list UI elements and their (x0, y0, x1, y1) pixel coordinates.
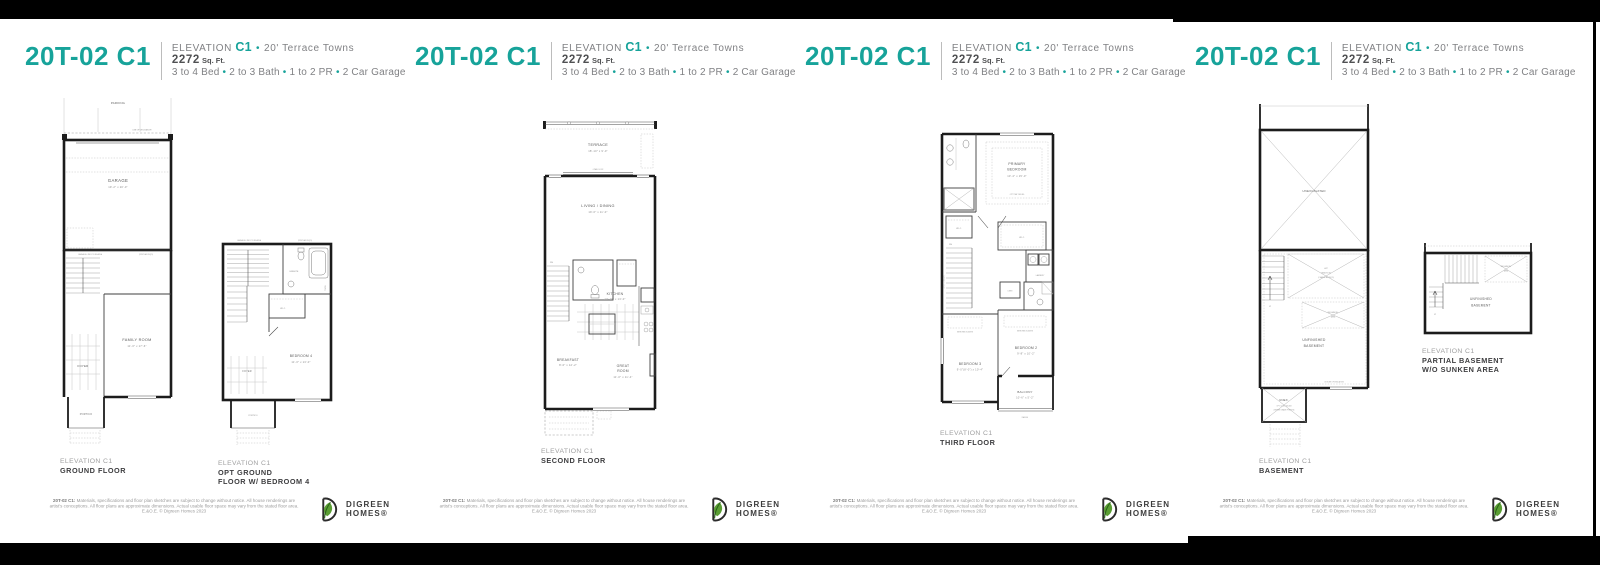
sqft-unit: Sq. Ft. (202, 56, 225, 65)
svg-text:(STEPS AS REQ'D): (STEPS AS REQ'D) (298, 239, 313, 242)
kitchen: KITCHEN 13'-10" x 13'-0" (577, 286, 654, 346)
logo-wordmark: DIGREENHOMES® (1126, 501, 1170, 518)
caption-second-floor: ELEVATION C1 SECOND FLOOR (541, 447, 606, 465)
svg-text:ROOM: ROOM (617, 369, 629, 373)
bottom-scan-bar-right (1188, 536, 1600, 565)
svg-text:6 PANL DOOR: 6 PANL DOOR (593, 168, 604, 171)
main-floor: FAMILY ROOM 11'-0" x 17'-6" FOYER (64, 250, 171, 399)
svg-text:TERRACE: TERRACE (588, 143, 608, 147)
ground-floor-plan: PARKING LINE OF DECK ABOVE GARAGE 19'-2"… (58, 94, 178, 446)
svg-text:GARBAGE & RECYCLING AREA: GARBAGE & RECYCLING AREA (237, 239, 262, 242)
svg-text:11'-0" x 11'-4": 11'-0" x 11'-4" (613, 375, 632, 379)
svg-text:PORTICO: PORTICO (80, 413, 92, 416)
disclaimer: 20T-02 C1: Materials, specifications and… (46, 495, 302, 521)
panel-third-floor: 20T-02 C1 ELEVATION C1•20' Terrace Towns… (798, 0, 1186, 565)
panel-ground-floor: 20T-02 C1 ELEVATION C1•20' Terrace Towns… (18, 0, 406, 565)
caption-partial-basement: ELEVATION C1 PARTIAL BASEMENT W/O SUNKEN… (1422, 347, 1504, 374)
leaf-logo-icon (1094, 496, 1121, 523)
stairs: DN OPEN TO BELOW (944, 244, 973, 308)
svg-text:9'-8" x 10'-2": 9'-8" x 10'-2" (1017, 352, 1035, 356)
svg-text:PARKING: PARKING (111, 101, 126, 105)
svg-text:ENSUITE: ENSUITE (290, 271, 299, 273)
unfinished-basement: UNFINISHED BASEMENT OUTLINE OF INSULATIO… (1302, 338, 1344, 384)
panel-footer: 20T-02 C1: Materials, specifications and… (1216, 495, 1570, 523)
insulation-outline (1264, 254, 1366, 384)
foyer: FOYER (227, 356, 267, 394)
bedroom4: BEDROOM 4 11'-0" x 13'-0" (269, 318, 321, 402)
panel-footer: 20T-02 C1: Materials, specifications and… (46, 495, 400, 523)
cold-cellar: UNEX. OPT. COLD CELLAR (WHERE GRADE PERM… (1262, 388, 1306, 422)
parking-area: PARKING LINE OF DECK ABOVE (62, 98, 173, 140)
svg-text:MIRRORED SLIDERS: MIRRORED SLIDERS (957, 332, 973, 334)
digreen-logo: DIGREENHOMES® (704, 496, 780, 523)
model-title: 20T-02 C1 (1195, 41, 1321, 71)
svg-text:GREAT: GREAT (617, 364, 630, 368)
header: 20T-02 C1 ELEVATION C1•20' Terrace Towns… (25, 41, 406, 80)
model-title: 20T-02 C1 (415, 41, 541, 71)
leaf-logo-icon (1484, 496, 1511, 523)
svg-text:FOYER: FOYER (78, 364, 89, 368)
garage: GARAGE 19'-2" x 20'-0" GARBAGE & RECYCLI… (64, 140, 171, 256)
primary-ensuite (942, 134, 976, 212)
unexcavated: UNEXCAVATED (1260, 130, 1368, 250)
portico: PORTICO (68, 397, 104, 444)
disclaimer: 20T-02 C1: Materials, specifications and… (1216, 495, 1472, 521)
bedroom3: MIRRORED SLIDERS BEDROOM 3 9'-0"(8'-0") … (940, 310, 998, 404)
elevation-label: ELEVATION (172, 43, 232, 54)
svg-text:UP: UP (1269, 306, 1271, 308)
svg-text:BREAKFAST: BREAKFAST (557, 358, 579, 362)
svg-text:18'-10" x 9'-0": 18'-10" x 9'-0" (588, 149, 608, 153)
unfinished-basement: UNFINISHED BASEMENT (1470, 297, 1492, 308)
laundry: LAUNDRY (1026, 250, 1053, 282)
wic: W.I.C. (269, 294, 305, 318)
svg-text:W.I.C.: W.I.C. (280, 308, 286, 310)
svg-text:GARAGE: GARAGE (108, 178, 129, 183)
wic-1: W.I.C. (946, 216, 972, 238)
header: 20T-02 C1 ELEVATION C1•20' Terrace Towns… (1195, 41, 1576, 80)
svg-text:HEADROOM: HEADROOM (1321, 272, 1331, 275)
third-floor-plan: PRIMARY BEDROOM 13'-4" x 15'-0" OPT TRAY… (940, 124, 1056, 424)
svg-text:UNFINISHED: UNFINISHED (1470, 297, 1492, 301)
svg-text:BALCONY: BALCONY (1017, 390, 1032, 394)
svg-text:UNEX.: UNEX. (1279, 398, 1289, 402)
stairs: DN (547, 262, 569, 321)
svg-text:W.I.C.: W.I.C. (956, 228, 962, 230)
patio-below (545, 411, 611, 435)
digreen-logo: DIGREENHOMES® (1484, 496, 1560, 523)
caption-opt-ground-floor: ELEVATION C1 OPT GROUND FLOOR W/ BEDROOM… (218, 459, 310, 486)
stairs (227, 250, 269, 322)
svg-text:BEDROOM 2: BEDROOM 2 (1015, 346, 1038, 350)
mechanical-area: MECHANICAL AREA (1485, 256, 1527, 282)
svg-text:FOYER: FOYER (242, 370, 251, 373)
svg-text:OPT TRAY CEILING: OPT TRAY CEILING (1010, 193, 1025, 196)
caption-basement: ELEVATION C1 BASEMENT (1259, 457, 1312, 475)
svg-text:LINEN: LINEN (1008, 291, 1014, 293)
deck-above (1425, 243, 1531, 253)
svg-text:9'-0"(8'-0") x 10'-4": 9'-0"(8'-0") x 10'-4" (957, 368, 983, 372)
svg-text:LIVING / DINING: LIVING / DINING (581, 204, 614, 208)
header-info: ELEVATION C1•20' Terrace Towns 2272 Sq. … (172, 41, 406, 79)
svg-text:BEDROOM: BEDROOM (1007, 168, 1026, 172)
closet (617, 260, 636, 286)
svg-text:UNEXCAVATED: UNEXCAVATED (1302, 189, 1325, 193)
svg-text:OUTLINE OF INSULATION: OUTLINE OF INSULATION (1324, 381, 1344, 384)
svg-text:HWT: HWT (1324, 268, 1328, 270)
svg-text:(CHANGE AS REQ'D): (CHANGE AS REQ'D) (1318, 276, 1334, 279)
bedroom2: MIRRORED SLIDERS BEDROOM 2 9'-8" x 10'-2… (998, 310, 1053, 356)
great-room: GREAT ROOM 11'-0" x 11'-4" (613, 354, 655, 379)
svg-text:FAMILY ROOM: FAMILY ROOM (122, 338, 151, 342)
svg-text:LINE OF DECK ABOVE: LINE OF DECK ABOVE (132, 129, 152, 132)
living-dining: LIVING / DINING 19'-0" x 11'-0" (581, 204, 614, 214)
header-divider (941, 42, 942, 80)
sqft-value: 2272 (172, 54, 200, 66)
balcony: BALCONY 10'-6" x 5'-2" RAILING (998, 367, 1053, 419)
portico: PORTICO (231, 400, 275, 445)
svg-text:DN: DN (550, 262, 553, 264)
svg-text:MECHANICAL: MECHANICAL (1328, 311, 1339, 314)
svg-text:GARBAGE & RECYCLING AREA: GARBAGE & RECYCLING AREA (78, 253, 103, 256)
deck-above (1260, 104, 1368, 130)
digreen-logo: DIGREENHOMES® (314, 496, 390, 523)
svg-text:BEDROOM 3: BEDROOM 3 (959, 362, 982, 366)
svg-text:UP: UP (1434, 314, 1436, 316)
exterior-walls (1425, 253, 1531, 333)
svg-text:11'-0" x 17'-6": 11'-0" x 17'-6" (127, 344, 146, 348)
terrace: TERRACE 18'-10" x 9'-0" 6 PANL DOOR (543, 121, 657, 175)
svg-text:BEDROOM 4: BEDROOM 4 (290, 354, 313, 358)
partial-basement-plan: UP MECHANICAL AREA UNFINISHED BASEMENT (1421, 243, 1535, 339)
svg-text:KITCHEN: KITCHEN (607, 292, 624, 296)
main-bath (1024, 282, 1053, 310)
caption-third-floor: ELEVATION C1 THIRD FLOOR (940, 429, 995, 447)
header: 20T-02 C1 ELEVATION C1•20' Terrace Towns… (415, 41, 796, 80)
model-title: 20T-02 C1 (25, 41, 151, 71)
svg-text:13'-4" x 15'-0": 13'-4" x 15'-0" (1007, 174, 1027, 178)
header-info: ELEVATION C1•20' Terrace Towns 2272 Sq. … (1342, 41, 1576, 79)
svg-text:19'-2" x 20'-0": 19'-2" x 20'-0" (108, 185, 128, 189)
panel-footer: 20T-02 C1: Materials, specifications and… (436, 495, 790, 523)
svg-text:LAUNDRY: LAUNDRY (1036, 274, 1045, 277)
header-divider (1331, 42, 1332, 80)
floorplan-sheet: 20T-02 C1 ELEVATION C1•20' Terrace Towns… (0, 0, 1600, 565)
header-info: ELEVATION C1•20' Terrace Towns 2272 Sq. … (952, 41, 1186, 79)
logo-wordmark: DIGREENHOMES® (736, 501, 780, 518)
svg-text:11'-0" x 13'-0": 11'-0" x 13'-0" (291, 360, 310, 364)
svg-text:BASEMENT: BASEMENT (1471, 304, 1491, 308)
svg-text:PORTICO: PORTICO (248, 415, 258, 417)
svg-text:OPEN TO BELOW: OPEN TO BELOW (944, 275, 946, 289)
logo-wordmark: DIGREENHOMES® (1516, 501, 1560, 518)
digreen-logo: DIGREENHOMES® (1094, 496, 1170, 523)
svg-text:UNFINISHED: UNFINISHED (1302, 338, 1326, 342)
series-name: 20' Terrace Towns (264, 43, 354, 54)
linen: LINEN (1000, 282, 1020, 298)
primary-bedroom: PRIMARY BEDROOM 13'-4" x 15'-0" OPT TRAY… (986, 142, 1048, 204)
svg-text:8'-0" x 12'-2": 8'-0" x 12'-2" (559, 363, 577, 367)
svg-text:PRIMARY: PRIMARY (1008, 162, 1026, 166)
elevation-code: C1 (235, 40, 252, 54)
header-divider (551, 42, 552, 80)
panel-footer: 20T-02 C1: Materials, specifications and… (826, 495, 1180, 523)
leaf-logo-icon (314, 496, 341, 523)
svg-text:TOWEL: TOWEL (325, 285, 327, 291)
disclaimer: 20T-02 C1: Materials, specifications and… (826, 495, 1082, 521)
svg-text:10'-6" x 5'-2": 10'-6" x 5'-2" (1016, 396, 1034, 400)
panel-second-floor: 20T-02 C1 ELEVATION C1•20' Terrace Towns… (408, 0, 796, 565)
hwt-headroom: HWT HEADROOM (CHANGE AS REQ'D) (1288, 254, 1364, 298)
svg-text:13'-10" x 13'-0": 13'-10" x 13'-0" (604, 297, 625, 301)
basement-plan: UNEXCAVATED UP HWT HEADROOM (CHANGE AS R (1258, 104, 1372, 449)
second-floor-plan: TERRACE 18'-10" x 9'-0" 6 PANL DOOR LIVI… (541, 108, 659, 438)
caption-ground-floor: ELEVATION C1 GROUND FLOOR (60, 457, 126, 475)
header: 20T-02 C1 ELEVATION C1•20' Terrace Towns… (805, 41, 1186, 80)
exterior-steps (1270, 424, 1300, 447)
model-title: 20T-02 C1 (805, 41, 931, 71)
svg-text:19'-0" x 11'-0": 19'-0" x 11'-0" (588, 210, 607, 214)
svg-text:MECHANICAL: MECHANICAL (1501, 265, 1512, 268)
wic-2: W.I.C. (998, 222, 1046, 250)
disclaimer: 20T-02 C1: Materials, specifications and… (436, 495, 692, 521)
panel-basement: 20T-02 C1 ELEVATION C1•20' Terrace Towns… (1188, 0, 1576, 565)
svg-text:W.I.C.: W.I.C. (1019, 237, 1025, 239)
header-divider (161, 42, 162, 80)
svg-text:(STEPS AS REQ'D): (STEPS AS REQ'D) (139, 253, 154, 256)
ensuite: ENSUITE TOWEL (283, 244, 331, 294)
leaf-logo-icon (704, 496, 731, 523)
svg-text:DN: DN (949, 244, 952, 246)
stairs: UP (1262, 256, 1284, 308)
logo-wordmark: DIGREENHOMES® (346, 501, 390, 518)
svg-text:RAILING: RAILING (1022, 416, 1029, 419)
svg-text:MIRRORED SLIDERS: MIRRORED SLIDERS (1017, 331, 1033, 333)
header-info: ELEVATION C1•20' Terrace Towns 2272 Sq. … (562, 41, 796, 79)
right-scan-edge (1593, 0, 1596, 565)
mechanical-area: MECHANICAL AREA (1302, 302, 1364, 328)
breakfast: BREAKFAST 8'-0" x 12'-2" (557, 358, 579, 367)
svg-text:(WHERE GRADE PERMITS): (WHERE GRADE PERMITS) (1274, 409, 1295, 412)
opt-ground-floor-plan: GARBAGE & RECYCLING AREA (STEPS AS REQ'D… (221, 236, 333, 450)
svg-text:BASEMENT: BASEMENT (1304, 344, 1325, 348)
